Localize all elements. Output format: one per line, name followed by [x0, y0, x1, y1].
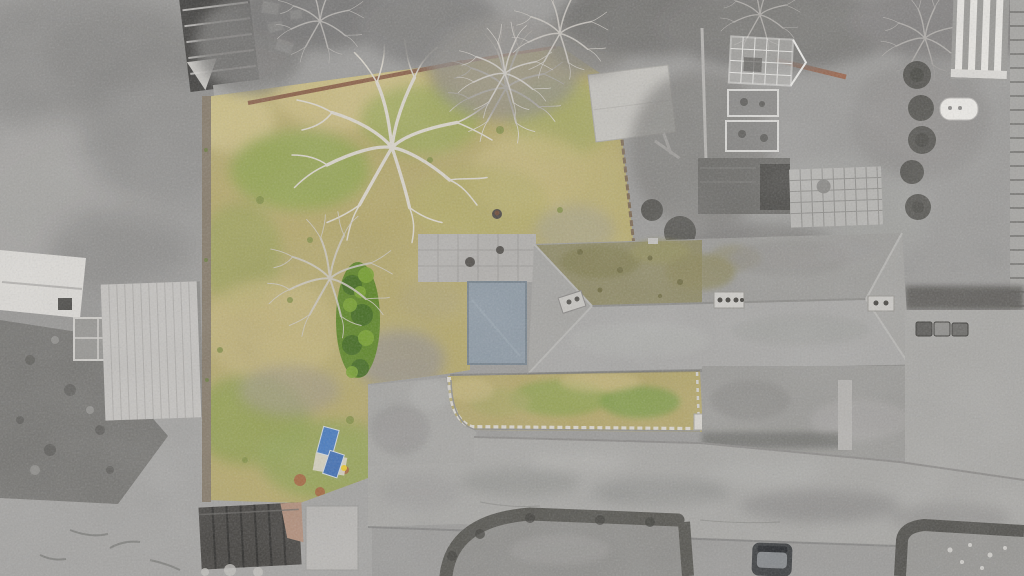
aerial-photo-canvas	[0, 0, 1024, 576]
photo-grain	[0, 0, 1024, 576]
aerial-photo	[0, 0, 1024, 576]
